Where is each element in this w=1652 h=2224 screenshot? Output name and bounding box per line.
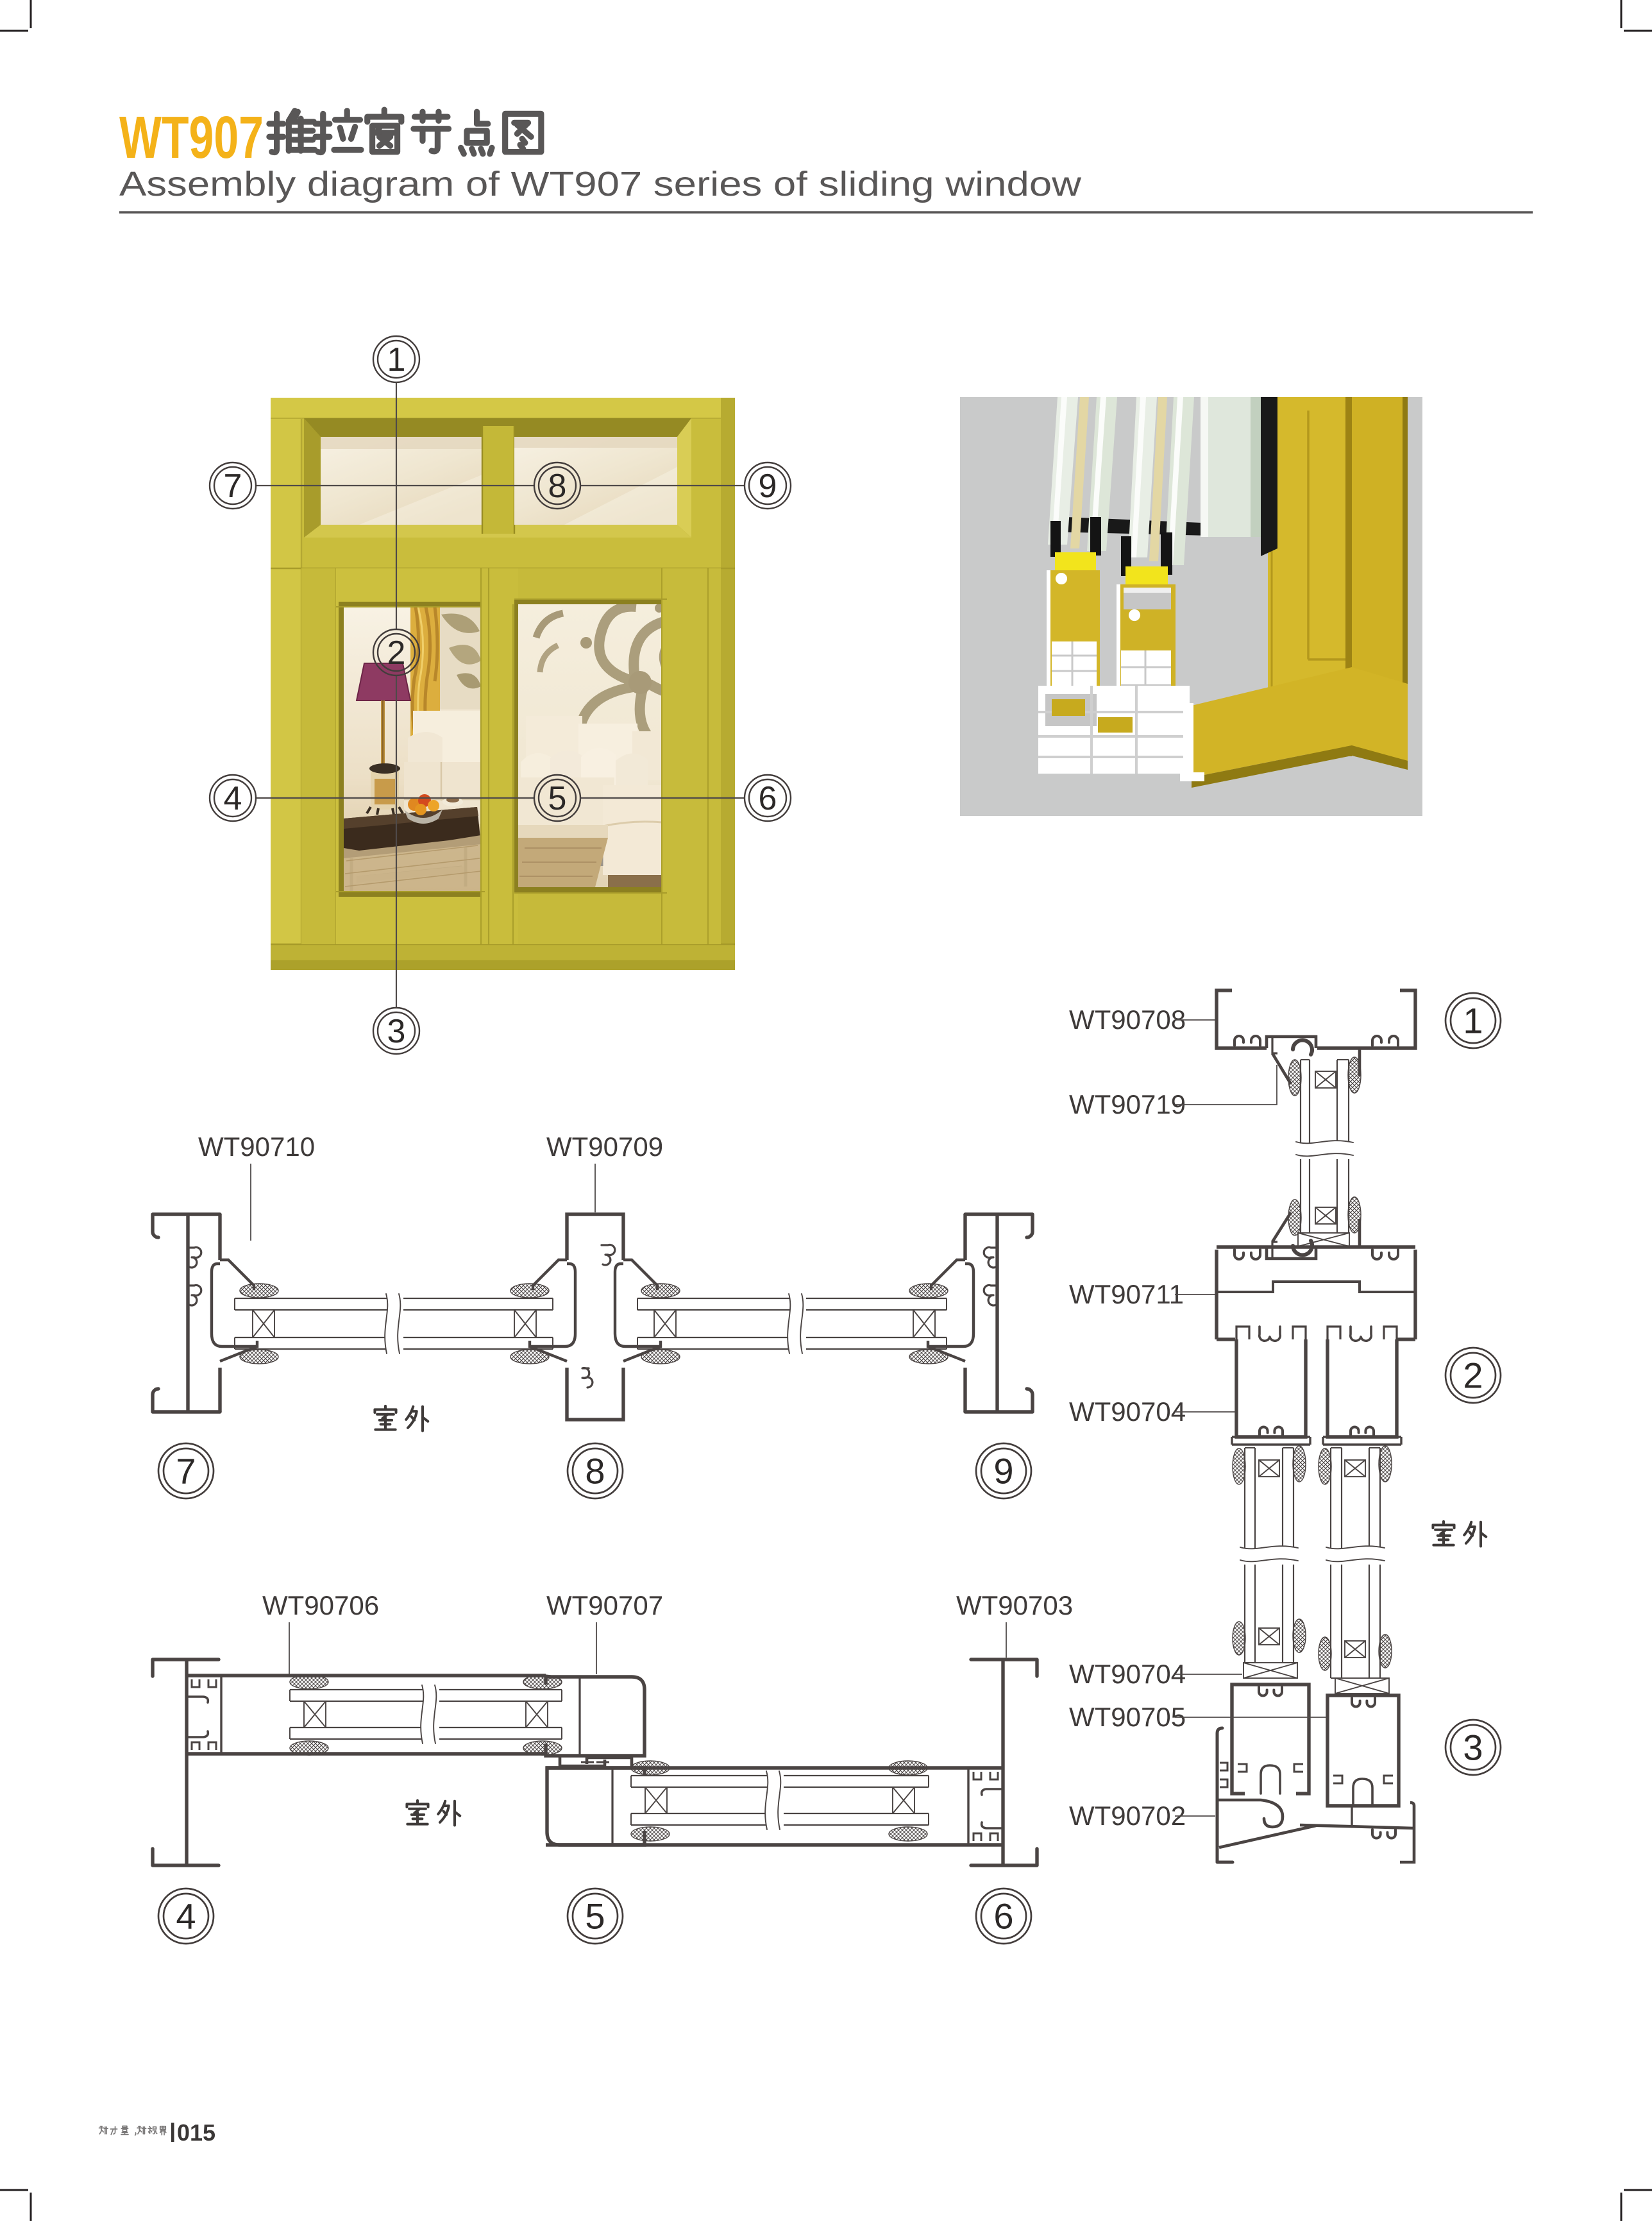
svg-text:5: 5 bbox=[585, 1896, 605, 1937]
svg-text:9: 9 bbox=[993, 1451, 1013, 1491]
svg-text:WT90704: WT90704 bbox=[1069, 1396, 1186, 1427]
svg-text:WT90702: WT90702 bbox=[1069, 1801, 1186, 1831]
svg-text:8: 8 bbox=[548, 468, 567, 505]
svg-text:4: 4 bbox=[176, 1896, 196, 1937]
svg-text:WT907: WT907 bbox=[119, 104, 264, 171]
svg-text:3: 3 bbox=[1463, 1727, 1483, 1768]
svg-text:7: 7 bbox=[176, 1451, 196, 1491]
svg-text:3: 3 bbox=[387, 1013, 406, 1050]
svg-text:WT90707: WT90707 bbox=[546, 1590, 663, 1620]
svg-text:WT90705: WT90705 bbox=[1069, 1702, 1186, 1732]
svg-text:WT90704: WT90704 bbox=[1069, 1659, 1186, 1689]
svg-text:WT90706: WT90706 bbox=[262, 1590, 379, 1620]
svg-text:Assembly diagram of WT907 seri: Assembly diagram of WT907 series of slid… bbox=[119, 165, 1082, 203]
svg-text:8: 8 bbox=[585, 1451, 605, 1491]
svg-text:5: 5 bbox=[548, 780, 567, 817]
svg-text:2: 2 bbox=[1463, 1355, 1483, 1396]
svg-text:6: 6 bbox=[759, 780, 777, 817]
svg-text:WT90708: WT90708 bbox=[1069, 1005, 1186, 1035]
svg-text:WT90709: WT90709 bbox=[546, 1132, 663, 1162]
svg-text:9: 9 bbox=[759, 468, 777, 505]
svg-text:WT90710: WT90710 bbox=[198, 1132, 315, 1162]
svg-text:WT90719: WT90719 bbox=[1069, 1089, 1186, 1119]
svg-text:7: 7 bbox=[224, 468, 242, 505]
svg-text:6: 6 bbox=[993, 1896, 1013, 1937]
svg-text:1: 1 bbox=[387, 341, 406, 378]
svg-text:015: 015 bbox=[177, 2119, 215, 2146]
svg-text:4: 4 bbox=[224, 780, 242, 817]
svg-text:WT90703: WT90703 bbox=[956, 1590, 1073, 1620]
svg-text:2: 2 bbox=[387, 634, 406, 672]
svg-text:WT90711: WT90711 bbox=[1069, 1279, 1184, 1309]
svg-text:1: 1 bbox=[1463, 1001, 1483, 1041]
